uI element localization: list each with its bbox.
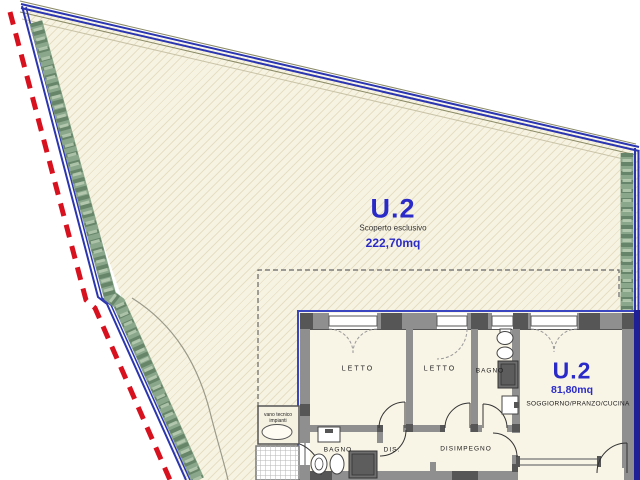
room-label-vano-tecnico-2: impianti	[269, 419, 286, 425]
room-label-bagno-2: BAGNO	[324, 447, 352, 454]
wall-right	[622, 313, 634, 480]
boundary-top	[20, 1, 639, 161]
tank-icon	[262, 425, 292, 440]
room-label-letto-1: LETTO	[342, 366, 374, 373]
site-unit-label: U.2	[370, 194, 415, 225]
hedge-left	[36, 22, 198, 480]
boundary-navy-band	[634, 310, 640, 480]
site-plan-canvas: U.2 Scoperto esclusivo 222,70mq LETTO LE…	[0, 0, 640, 480]
unit-area-value: 81,80mq	[551, 384, 593, 396]
site-area-value: 222,70mq	[366, 236, 421, 250]
toilet-icon	[311, 454, 327, 474]
plan-drawing	[0, 0, 640, 480]
toilet-icon	[497, 332, 513, 345]
room-label-disimpegno: DISIMPEGNO	[440, 446, 492, 453]
bidet-icon	[330, 454, 344, 474]
room-label-letto-2: LETTO	[424, 366, 456, 373]
grate-area	[256, 446, 299, 480]
unit-label: U.2	[553, 358, 592, 385]
room-label-soggiorno: SOGGIORNO/PRANZO/CUCINA	[526, 401, 629, 408]
site-area-type: Scoperto esclusivo	[359, 224, 426, 233]
bidet-icon	[497, 347, 513, 359]
room-label-bagno-1: BAGNO	[476, 368, 504, 375]
room-label-dis: DIS.	[384, 447, 401, 454]
